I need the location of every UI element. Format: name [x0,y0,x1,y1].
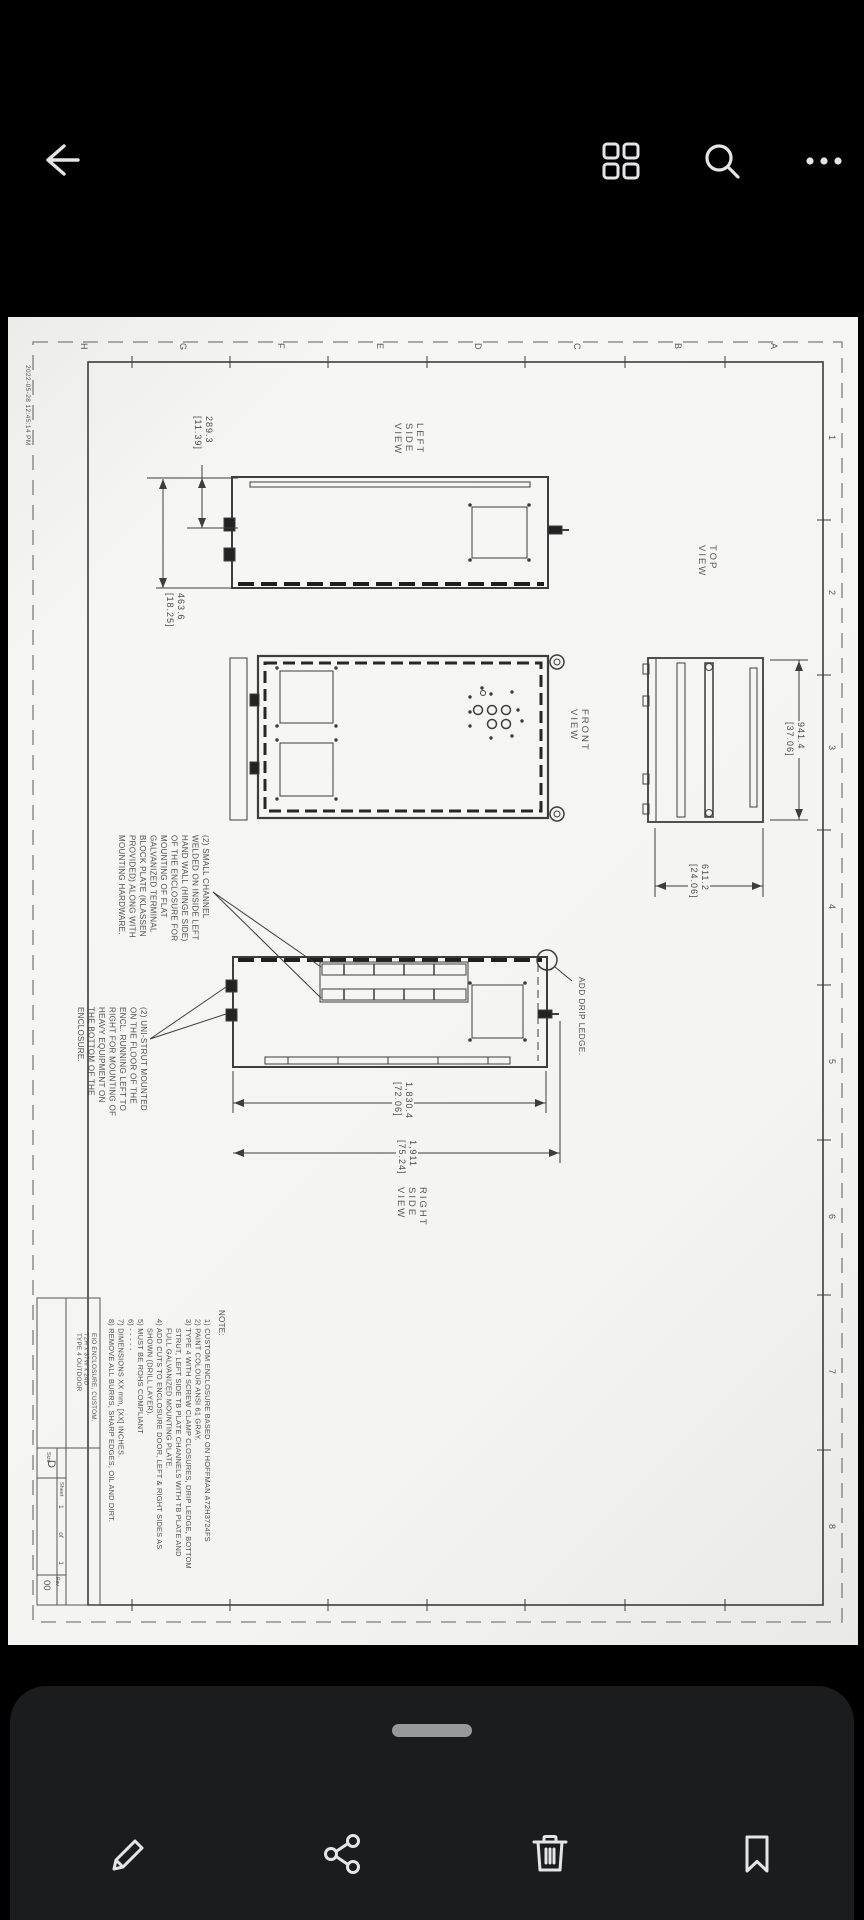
title-block-rev-label: Rev [54,1577,60,1586]
zone-number: 2 [827,590,837,595]
back-button[interactable] [37,137,83,183]
zone-letter: D [473,343,483,350]
dim-1911: 1,911 [75.24] [396,1139,418,1176]
left-side-view-drawing [224,477,569,588]
drawing-photo[interactable]: 2022-05-28 12:45:14 PM H G F E D C B A 1… [8,317,858,1645]
zone-letter: F [276,343,286,349]
notes-header: NOTE: [216,1310,227,1336]
share-icon [320,1830,368,1878]
top-app-bar [0,0,864,210]
delete-trash-icon [526,1830,574,1878]
zone-letter: H [79,343,89,350]
zone-letter: G [178,343,188,350]
more-options-button[interactable] [801,138,847,184]
zone-number: 6 [827,1214,837,1219]
dim-941-4: 941.4 [37.06] [784,721,806,758]
bottom-toolbar [10,1686,854,1920]
more-options-icon [801,138,847,184]
bookmark-button[interactable] [733,1830,781,1878]
title-block-title: EIO ENCLOSURE, CUSTOM, 72H x 37W x 24D T… [75,1333,98,1422]
grid-view-icon [598,138,644,184]
zone-letter: E [375,343,385,349]
search-icon [699,138,745,184]
back-arrow-icon [37,137,83,183]
bookmark-icon [733,1830,781,1878]
photo-viewer-screen: 2022-05-28 12:45:14 PM H G F E D C B A 1… [0,0,864,1920]
top-view-drawing [643,658,763,822]
title-block-sheet-info: 1 of 1 [57,1505,64,1565]
title-block-size-value: D [45,1460,57,1468]
right-side-view-drawing [226,950,572,1067]
zone-number: 3 [827,745,837,750]
zone-number: 8 [827,1524,837,1529]
front-view-drawing [230,655,564,821]
zone-number: 5 [827,1059,837,1064]
search-button[interactable] [699,138,745,184]
edit-pencil-icon [105,1830,153,1878]
share-button[interactable] [320,1830,368,1878]
delete-button[interactable] [526,1830,574,1878]
zone-letter: A [769,343,779,349]
right-side-view-label: RIGHT SIDE VIEW [395,1187,428,1227]
zone-number: 7 [827,1369,837,1374]
dim-611-2: 611.2 [24.06] [688,863,710,900]
left-side-view-label: LEFT SIDE VIEW [392,423,425,455]
channel-note: (2) SMALL CHANNEL WELDED ON INSIDE LEFT … [116,835,211,941]
title-block-rev-value: 00 [41,1580,52,1591]
zone-letter: C [572,343,582,350]
edit-button[interactable] [105,1830,153,1878]
front-view-label: FRONT VIEW [568,709,590,752]
dim-289-3: 289.3 [11.39] [192,416,214,450]
dim-463-6: 463.6 [18.25] [164,593,186,628]
dim-1830-4: 1,830.4 [72.06] [392,1081,414,1120]
zone-number: 4 [827,904,837,909]
title-block-sheet-label: Sheet [58,1482,64,1496]
grid-view-button[interactable] [598,138,644,184]
drag-handle[interactable] [392,1724,472,1737]
top-view-label: TOP VIEW [696,545,718,577]
zone-number: 1 [827,435,837,440]
plot-date-stamp: 2022-05-28 12:45:14 PM [24,365,31,446]
zone-letter: B [673,343,683,349]
drip-ledge-callout: ADD DRIP LEDGE. [576,977,587,1056]
notes-body: 1) CUSTOM ENCLOSURE BASED ON HOFFMAN A72… [106,1319,212,1569]
unistrut-note: (2) UNI-STRUT MOUNTED ON THE FLOOR OF TH… [75,1007,149,1116]
